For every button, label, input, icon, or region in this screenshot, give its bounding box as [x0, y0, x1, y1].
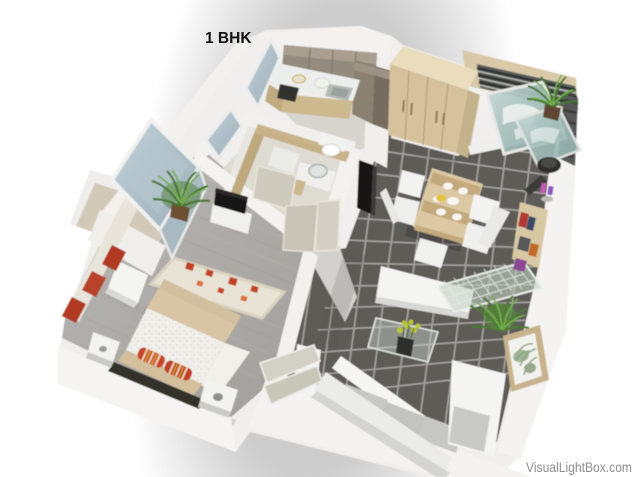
svg-text:1 BHK: 1 BHK: [205, 30, 252, 47]
svg-text:VisualLightBox.com: VisualLightBox.com: [526, 459, 632, 475]
